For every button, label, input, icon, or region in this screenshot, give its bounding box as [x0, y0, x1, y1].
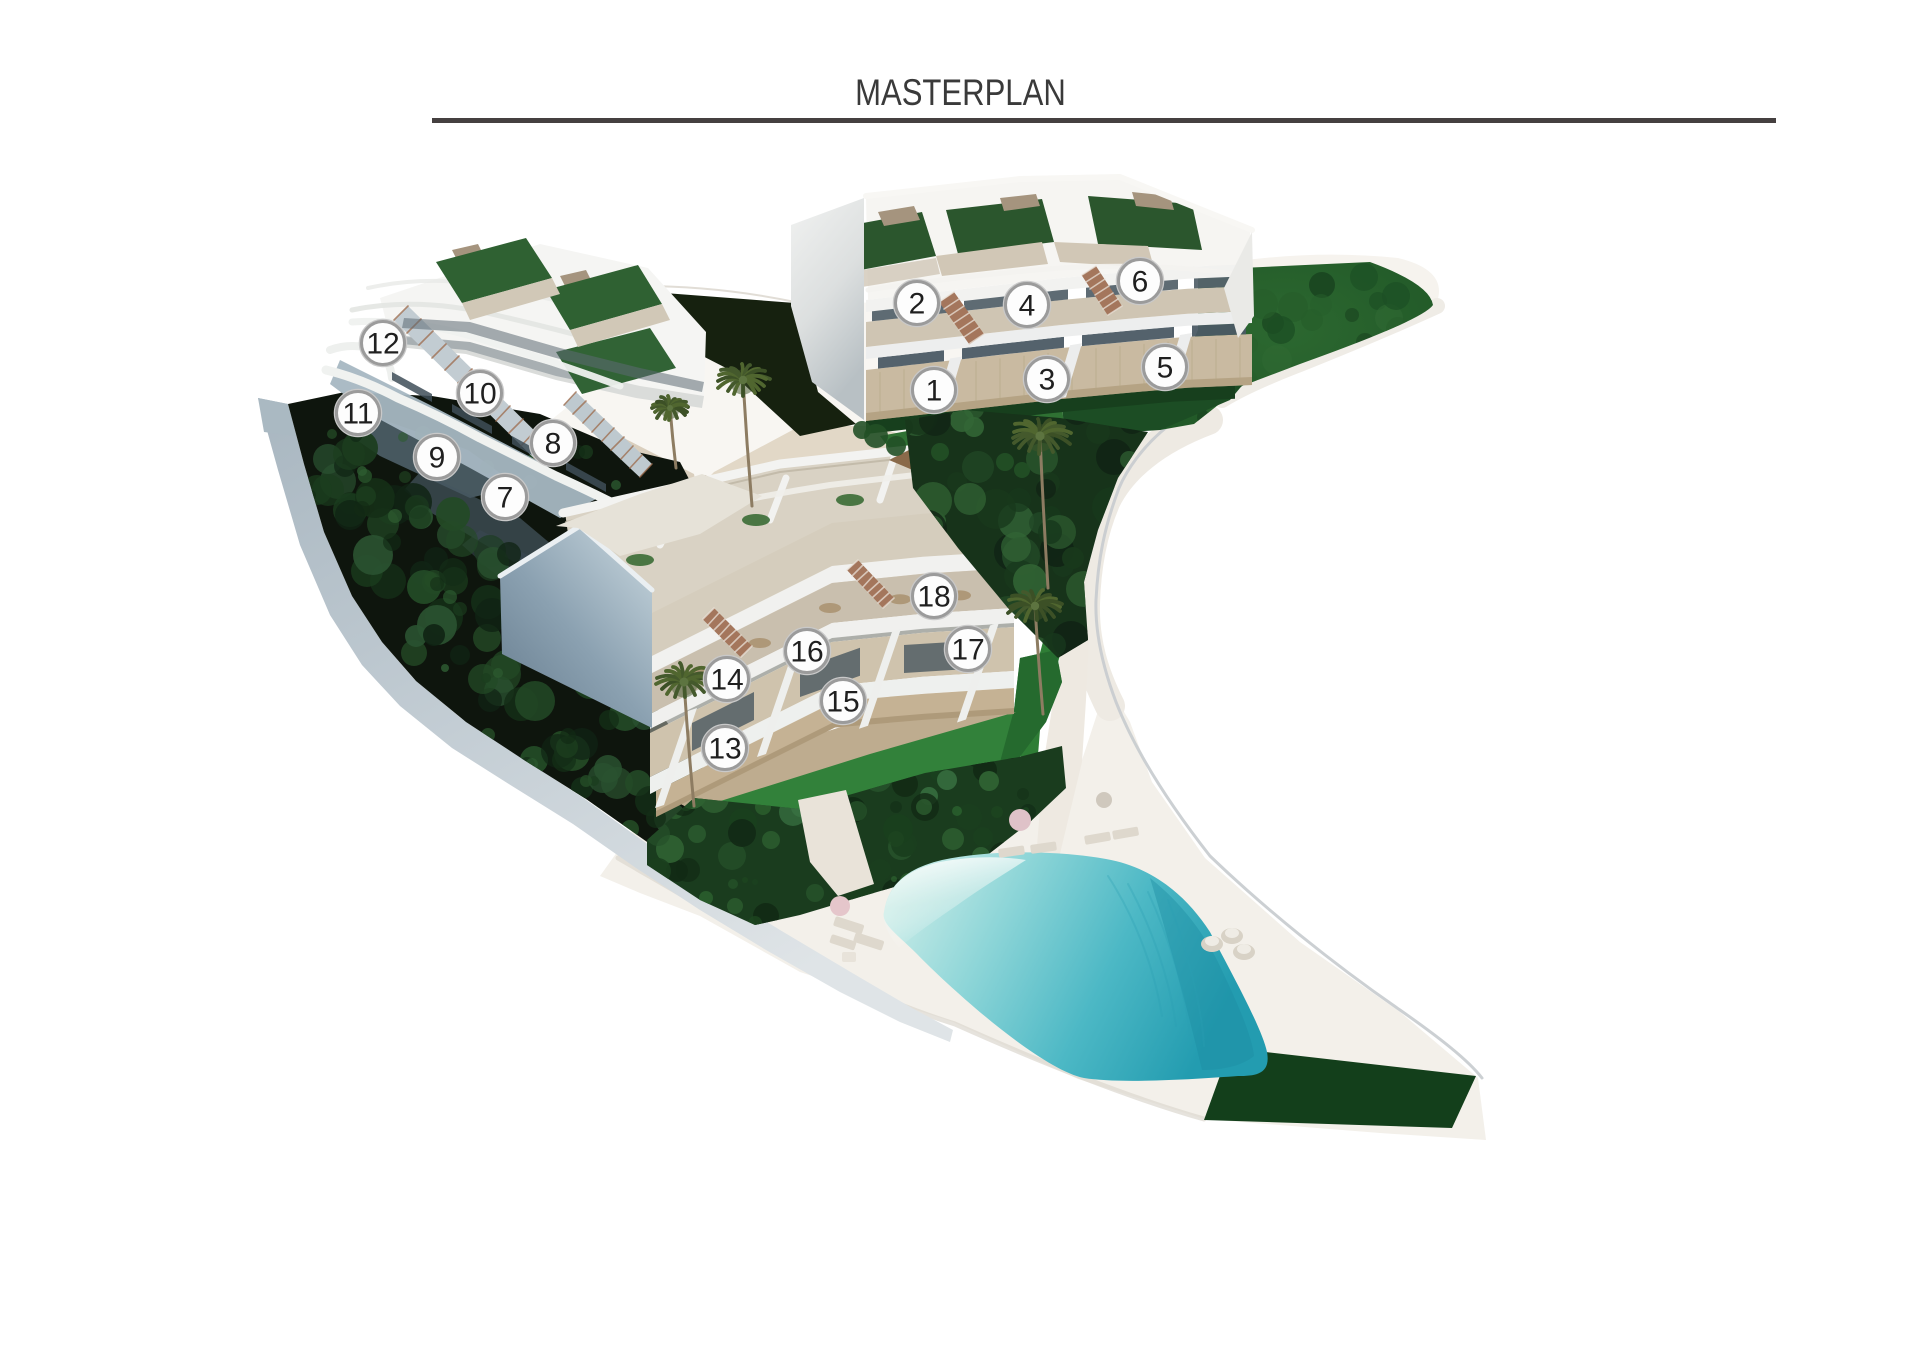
svg-text:5: 5 [1157, 352, 1174, 385]
svg-text:13: 13 [708, 733, 741, 766]
svg-text:9: 9 [429, 442, 446, 475]
svg-text:10: 10 [463, 378, 496, 411]
svg-text:8: 8 [545, 428, 562, 461]
svg-text:17: 17 [951, 634, 984, 667]
svg-text:11: 11 [342, 398, 373, 431]
svg-text:3: 3 [1039, 364, 1056, 397]
svg-text:16: 16 [790, 636, 823, 669]
svg-text:2: 2 [909, 288, 926, 321]
svg-text:1: 1 [926, 375, 943, 408]
svg-text:4: 4 [1019, 290, 1036, 323]
svg-text:15: 15 [826, 686, 859, 719]
svg-text:6: 6 [1132, 266, 1149, 299]
svg-text:18: 18 [917, 581, 950, 614]
svg-text:14: 14 [710, 664, 743, 697]
svg-text:12: 12 [366, 328, 399, 361]
svg-text:7: 7 [497, 482, 514, 515]
